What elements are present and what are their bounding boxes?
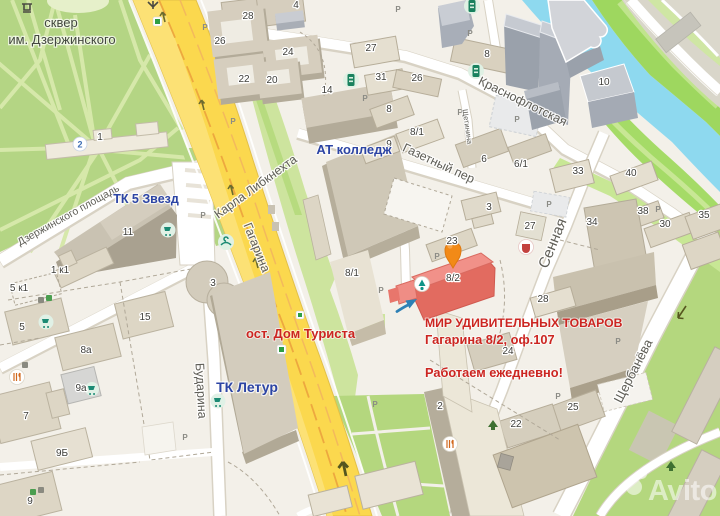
svg-text:6: 6: [481, 154, 487, 165]
svg-text:26: 26: [214, 36, 226, 47]
svg-text:P: P: [615, 337, 621, 346]
svg-text:28: 28: [242, 11, 254, 22]
svg-text:6/1: 6/1: [514, 159, 528, 170]
svg-text:P: P: [202, 23, 208, 32]
svg-text:P: P: [467, 29, 473, 38]
svg-text:8: 8: [386, 104, 392, 115]
svg-text:P: P: [395, 5, 401, 14]
svg-text:8: 8: [484, 49, 490, 60]
svg-text:P: P: [655, 205, 661, 214]
svg-text:34: 34: [586, 217, 598, 228]
svg-text:P: P: [230, 117, 236, 126]
svg-text:3: 3: [486, 202, 492, 213]
svg-text:31: 31: [375, 72, 387, 83]
svg-text:8/2: 8/2: [446, 273, 460, 284]
svg-text:7: 7: [23, 411, 29, 422]
svg-text:26: 26: [411, 73, 423, 84]
svg-text:ост. Дом Туриста: ост. Дом Туриста: [246, 326, 356, 341]
svg-text:22: 22: [238, 74, 250, 85]
svg-text:30: 30: [659, 219, 671, 230]
svg-text:11: 11: [123, 227, 134, 238]
svg-text:1: 1: [97, 132, 103, 143]
svg-text:Бударина: Бударина: [193, 363, 210, 420]
svg-text:сквер: сквер: [44, 15, 77, 30]
svg-text:24: 24: [282, 47, 294, 58]
svg-text:8/1: 8/1: [345, 268, 359, 279]
svg-text:24: 24: [502, 346, 514, 357]
svg-text:2: 2: [437, 401, 443, 412]
svg-text:P: P: [514, 115, 520, 124]
svg-text:P: P: [200, 211, 206, 220]
svg-text:14: 14: [321, 85, 333, 96]
svg-text:P: P: [555, 392, 561, 401]
svg-text:Работаем ежедневно!: Работаем ежедневно!: [425, 365, 563, 380]
svg-text:9Б: 9Б: [56, 448, 69, 459]
svg-text:1 к1: 1 к1: [51, 265, 70, 276]
svg-text:9а: 9а: [75, 383, 87, 394]
svg-text:10: 10: [598, 77, 610, 88]
svg-text:Avito: Avito: [648, 475, 717, 507]
svg-text:8/1: 8/1: [410, 127, 424, 138]
svg-text:15: 15: [139, 312, 151, 323]
svg-text:27: 27: [365, 43, 377, 54]
svg-text:28: 28: [537, 294, 549, 305]
svg-text:им. Дзержинского: им. Дзержинского: [8, 32, 115, 47]
svg-text:P: P: [434, 252, 440, 261]
svg-text:35: 35: [698, 210, 710, 221]
svg-text:40: 40: [625, 168, 637, 179]
svg-text:Гагарина 8/2, оф.107: Гагарина 8/2, оф.107: [425, 332, 555, 347]
svg-text:38: 38: [637, 206, 649, 217]
svg-text:9: 9: [27, 496, 33, 507]
svg-text:АТ колледж: АТ колледж: [316, 142, 392, 157]
svg-text:25: 25: [567, 402, 579, 413]
svg-text:22: 22: [510, 419, 522, 430]
svg-text:23: 23: [446, 236, 458, 247]
svg-text:8а: 8а: [80, 345, 92, 356]
svg-text:ТК 5 Звезд: ТК 5 Звезд: [113, 192, 179, 206]
svg-text:4: 4: [293, 0, 299, 11]
svg-text:P: P: [546, 200, 552, 209]
svg-text:27: 27: [524, 221, 536, 232]
svg-text:P: P: [182, 433, 188, 442]
svg-text:P: P: [372, 400, 378, 409]
svg-text:P: P: [378, 286, 384, 295]
svg-text:5 к1: 5 к1: [10, 283, 29, 294]
svg-text:ТК Летур: ТК Летур: [216, 379, 278, 395]
svg-text:5: 5: [19, 322, 25, 333]
svg-text:МИР УДИВИТЕЛЬНЫХ ТОВАРОВ: МИР УДИВИТЕЛЬНЫХ ТОВАРОВ: [425, 316, 623, 330]
svg-text:2: 2: [77, 140, 82, 150]
svg-text:33: 33: [572, 166, 584, 177]
svg-text:P: P: [362, 94, 368, 103]
svg-text:3: 3: [210, 278, 216, 289]
svg-text:20: 20: [266, 75, 278, 86]
